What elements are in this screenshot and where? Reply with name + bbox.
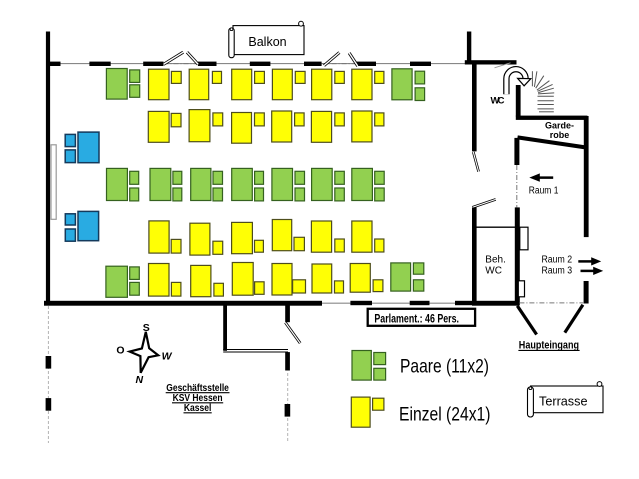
svg-text:Balkon: Balkon [248,35,286,49]
svg-text:Kassel: Kassel [184,402,212,414]
svg-text:W: W [162,351,173,363]
svg-text:WC: WC [491,96,505,107]
svg-text:O: O [116,345,124,357]
svg-text:Raum 3: Raum 3 [542,265,573,276]
svg-text:S: S [143,322,150,334]
svg-text:Einzel (24x1): Einzel (24x1) [399,403,491,425]
svg-text:Raum 1: Raum 1 [529,186,559,197]
svg-text:Terrasse: Terrasse [539,394,588,409]
svg-text:Raum 2: Raum 2 [542,255,573,266]
svg-text:Paare (11x2): Paare (11x2) [400,356,489,378]
svg-text:robe: robe [550,130,570,140]
svg-text:Haupteingang: Haupteingang [519,340,579,352]
svg-text:N: N [136,374,144,386]
svg-text:Parlament.: 46 Pers.: Parlament.: 46 Pers. [374,312,459,326]
svg-text:Beh.: Beh. [485,254,506,265]
svg-text:Garde-: Garde- [545,121,574,131]
svg-text:WC: WC [485,265,502,276]
